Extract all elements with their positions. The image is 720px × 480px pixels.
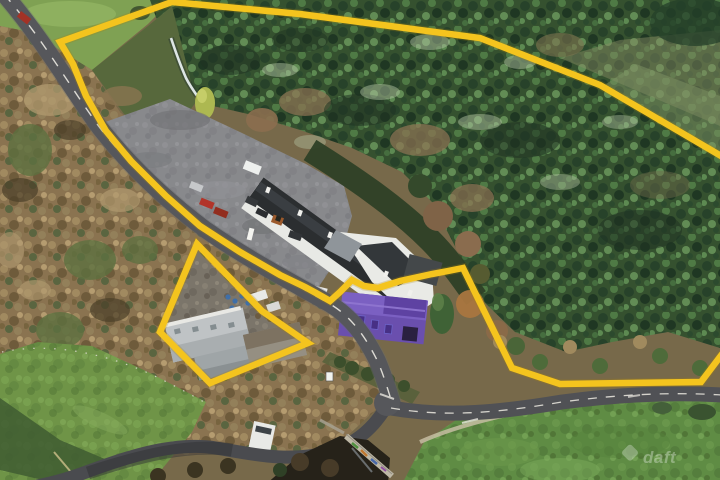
chartreuse-tree-highlight [197,89,207,103]
conifer-beside-purple-highlight [432,293,444,311]
forest-shadow-4 [598,210,682,250]
forest-brown-patch-5 [630,171,690,199]
forest-brown-patch-3 [450,184,494,212]
forest-frost-2 [360,84,400,100]
front-bush-1 [345,361,359,375]
brown-tree-clearing [246,108,278,132]
front-bush-5 [398,380,410,392]
bottom-tree-2 [220,458,236,474]
green-bush-right [507,337,525,355]
scrub-dark-1 [2,178,38,202]
scrub-bush-right-2 [592,358,608,374]
junk-barrel-2 [232,298,237,303]
roadside-sign [326,372,333,381]
hedge-right-road-1 [688,404,716,420]
forest-brown-patch-4 [536,33,584,57]
scrub-green-4 [122,236,158,264]
scrub-tan-right-3 [633,335,647,349]
forest-frost-1 [262,63,298,77]
scrub-dark-3 [54,120,86,140]
purple-window-4 [384,324,392,334]
aerial-photo-canvas: daft [0,0,720,480]
big-brown-tree-1 [423,201,453,231]
scrub-dark-2 [90,298,130,322]
scrub-bush-right-1 [532,354,548,370]
forest-frost-5 [540,174,580,190]
forest-frost-3 [458,114,502,130]
scrub-green-1 [8,124,52,176]
forest-frost-6 [602,115,638,129]
scrub-tan-2 [100,188,140,212]
purple-door-opening [402,326,418,341]
gorge-tree-2 [321,459,339,477]
gorge-tree-1 [291,453,309,471]
scrub-tan-right-2 [563,340,577,354]
gorge-tree-3 [273,463,287,477]
bottom-tree-1 [187,462,203,478]
scrub-green-2 [64,240,116,280]
junk-barrel-1 [225,294,230,299]
dark-tree-1 [408,174,432,198]
purple-window-3 [371,320,379,330]
forest-shadow-5 [272,28,328,52]
scrub-tan-4 [19,280,51,300]
hedge-right-road-2 [652,402,672,414]
clearing-brown-1 [102,86,142,106]
forest-brown-patch-2 [390,124,450,156]
big-brown-tree-2 [455,231,481,257]
forest-brown-patch-1 [279,88,331,116]
front-bush-3 [334,356,346,368]
watermark-text: daft [643,448,677,467]
aerial-photo: daft [0,0,720,480]
forest-shadow-1 [200,45,260,75]
scrub-bush-right-3 [652,348,668,364]
field-br-mottle-1 [460,438,540,466]
yard-stain-1 [150,110,210,130]
junction-surface [374,390,400,416]
